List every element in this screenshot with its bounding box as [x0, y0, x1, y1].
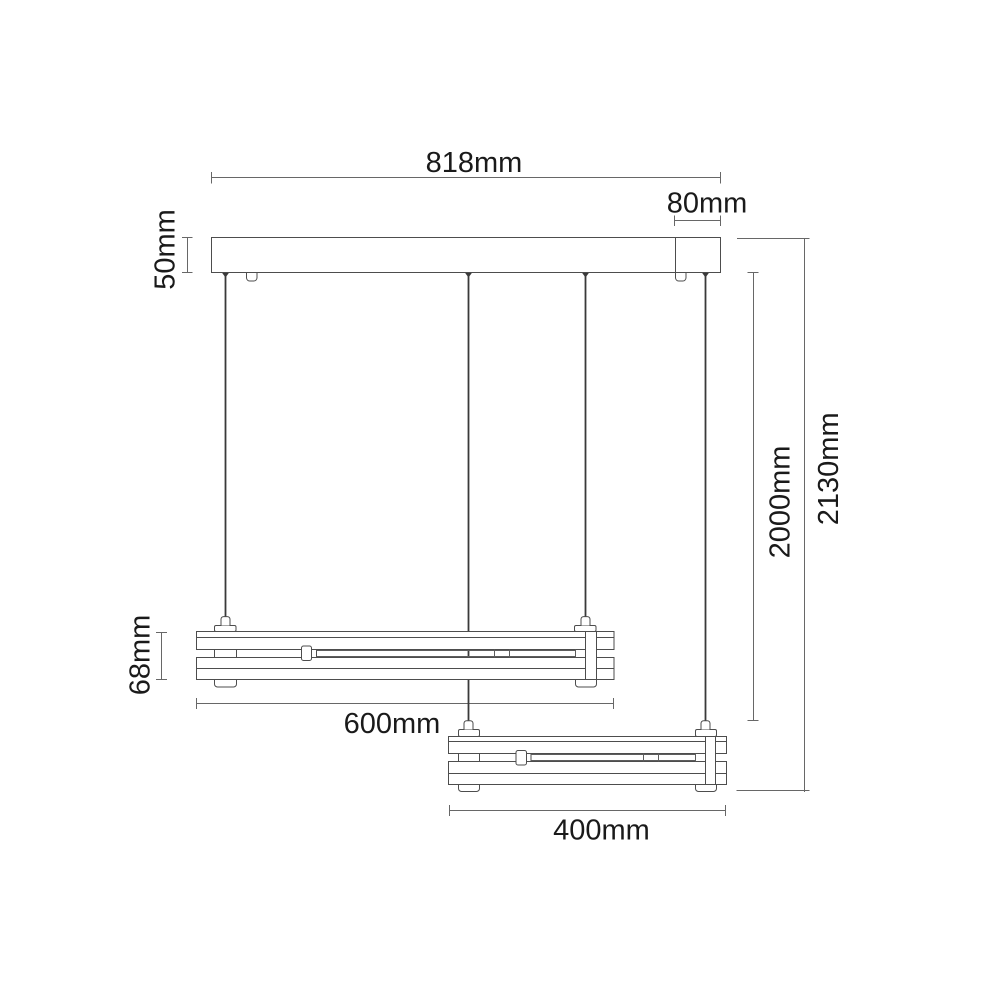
svg-text:50mm: 50mm	[149, 209, 181, 290]
svg-text:600mm: 600mm	[344, 708, 441, 740]
svg-text:2130mm: 2130mm	[813, 412, 845, 525]
svg-text:400mm: 400mm	[553, 815, 650, 847]
svg-text:68mm: 68mm	[125, 615, 157, 696]
svg-text:2000mm: 2000mm	[765, 446, 797, 559]
svg-text:818mm: 818mm	[426, 147, 523, 179]
svg-text:80mm: 80mm	[667, 188, 748, 220]
